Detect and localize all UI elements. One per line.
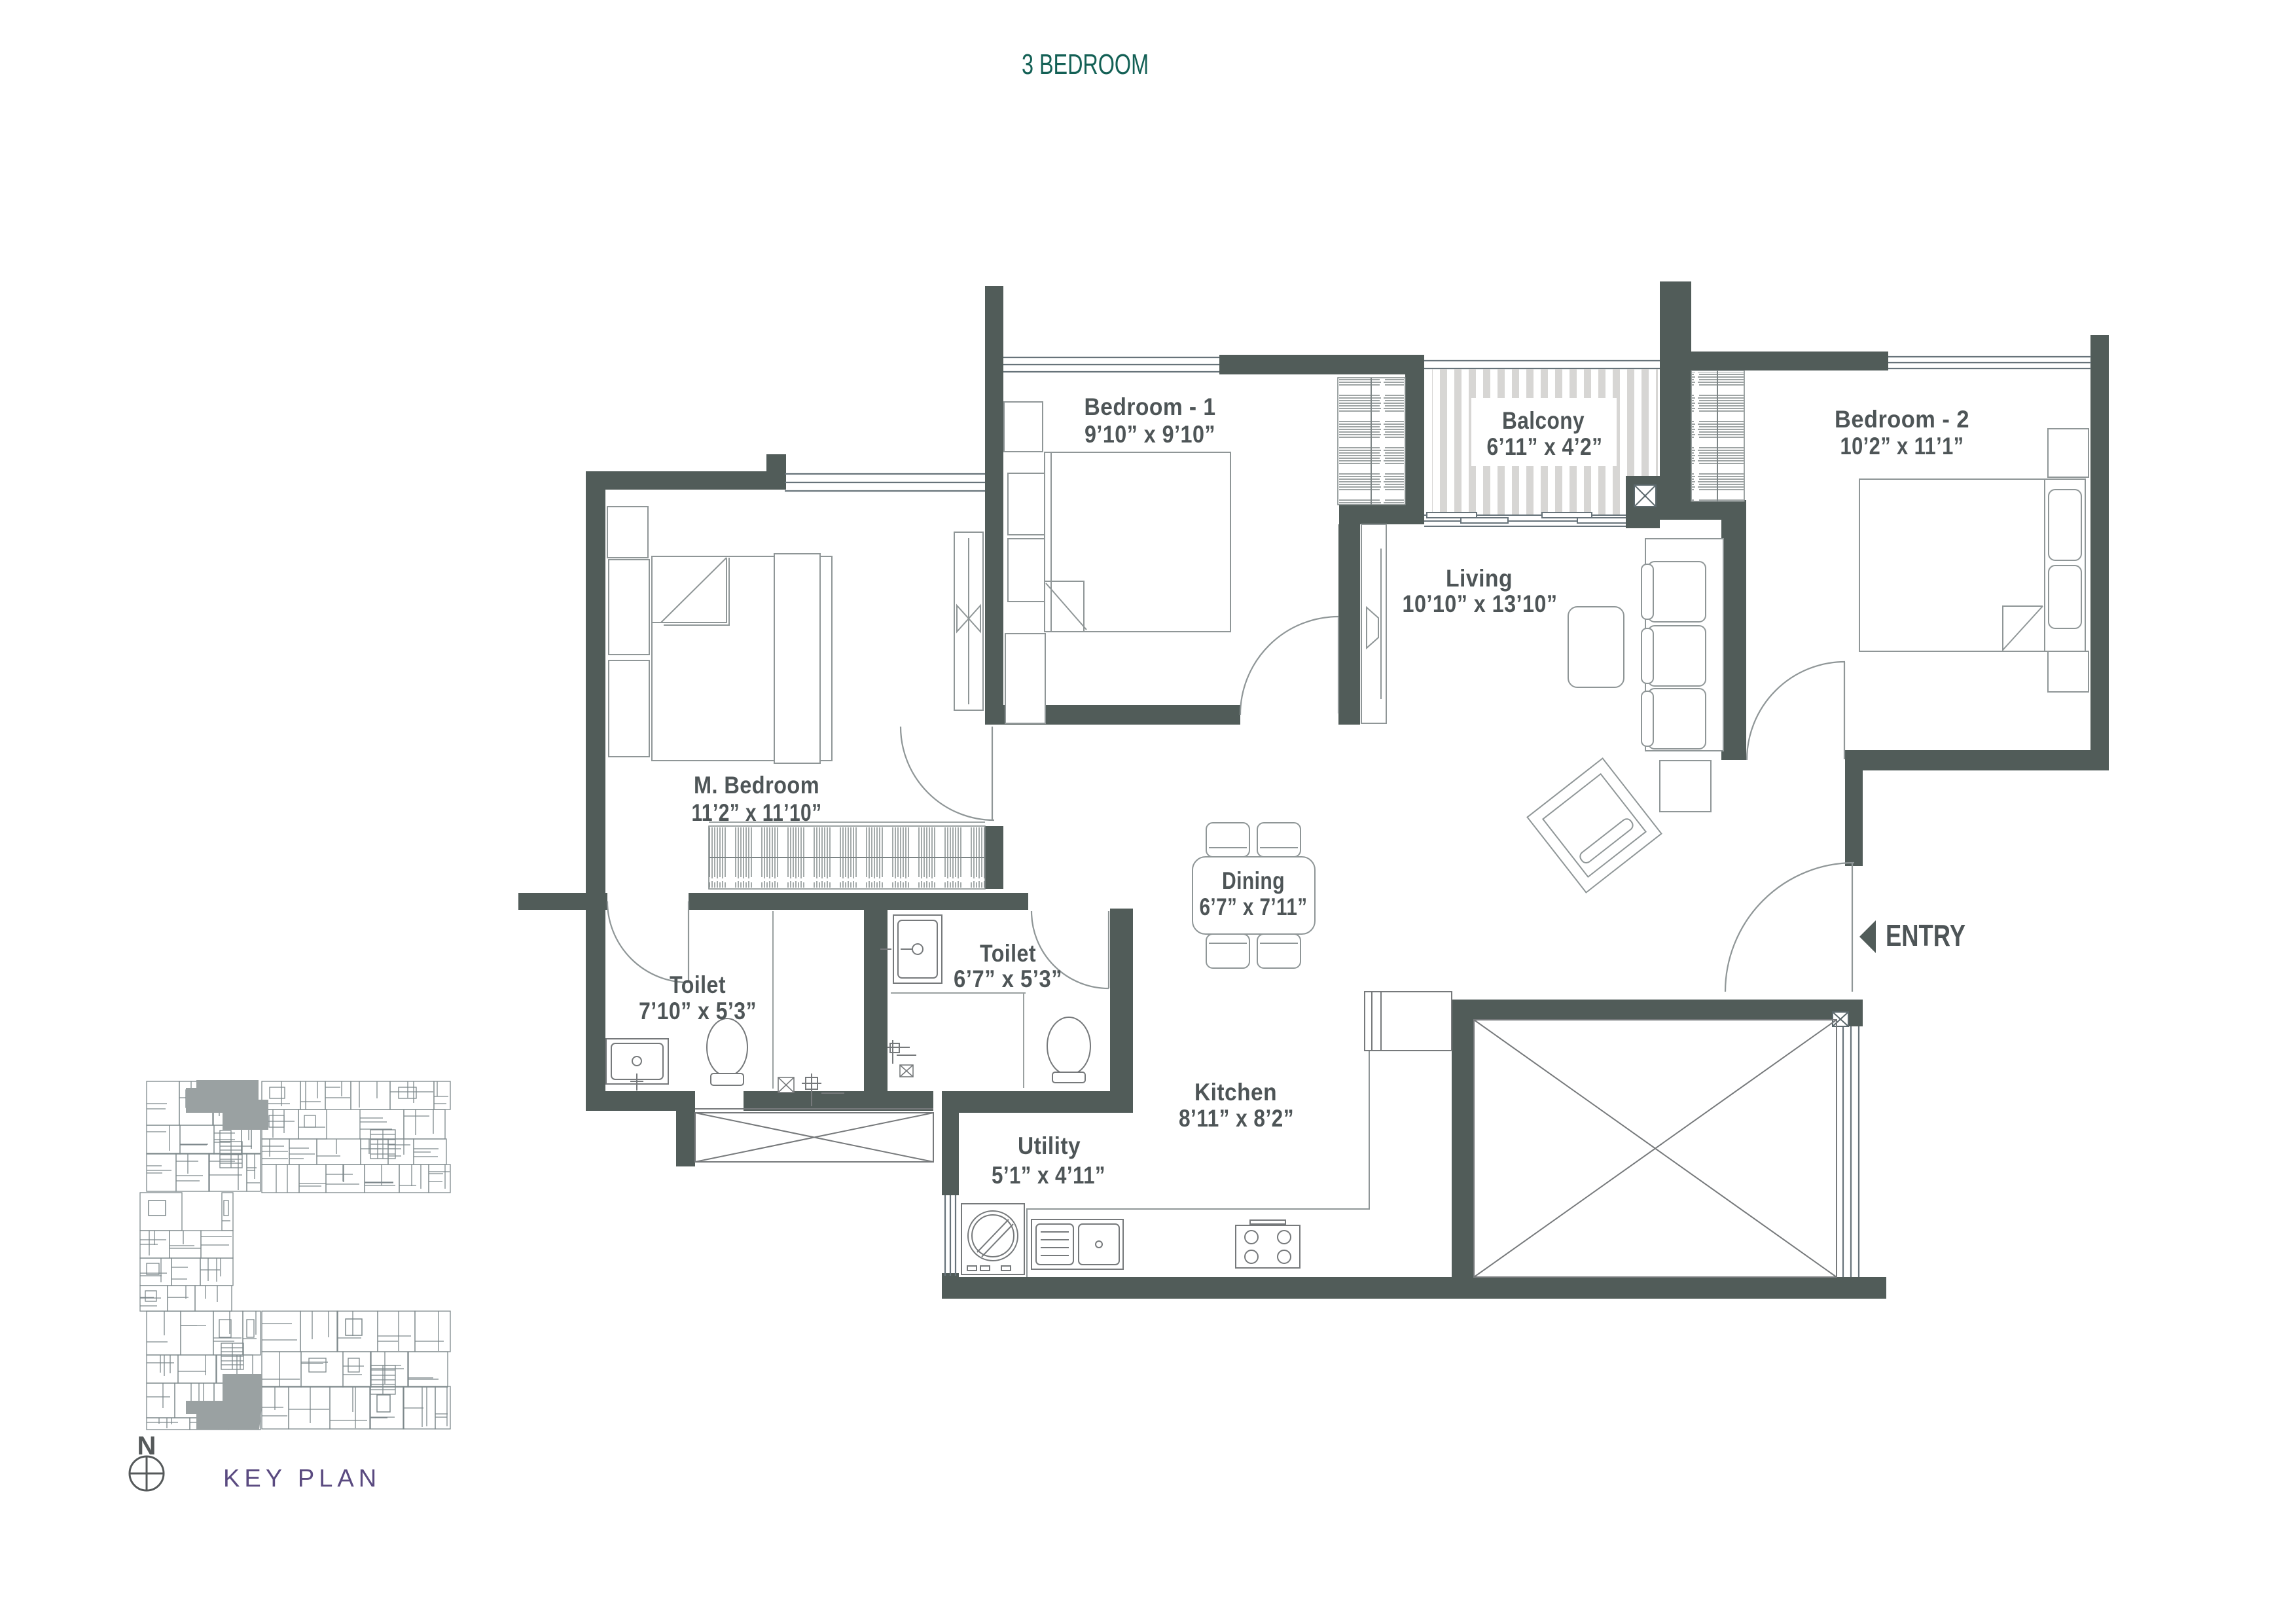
svg-text:10’10” x 13’10”: 10’10” x 13’10” xyxy=(1403,590,1558,617)
svg-text:7’10” x 5’3”: 7’10” x 5’3” xyxy=(639,998,757,1024)
svg-text:ENTRY: ENTRY xyxy=(1886,918,1965,952)
svg-text:5’1” x 4’11”: 5’1” x 4’11” xyxy=(992,1162,1105,1189)
svg-text:8’11” x 8’2”: 8’11” x 8’2” xyxy=(1179,1105,1294,1132)
svg-text:Balcony: Balcony xyxy=(1502,407,1585,434)
svg-text:11’2” x 11’10”: 11’2” x 11’10” xyxy=(692,799,822,826)
svg-text:Kitchen: Kitchen xyxy=(1194,1079,1277,1106)
svg-text:Toilet: Toilet xyxy=(670,971,726,998)
svg-text:KEY PLAN: KEY PLAN xyxy=(223,1465,381,1492)
svg-text:Bedroom - 2: Bedroom - 2 xyxy=(1835,406,1969,433)
svg-text:Toilet: Toilet xyxy=(980,940,1036,967)
svg-text:M. Bedroom: M. Bedroom xyxy=(694,772,819,799)
svg-text:Bedroom - 1: Bedroom - 1 xyxy=(1085,393,1216,420)
svg-text:6’11” x 4’2”: 6’11” x 4’2” xyxy=(1487,433,1603,460)
svg-text:6’7” x 7’11”: 6’7” x 7’11” xyxy=(1200,893,1308,920)
svg-text:10’2” x 11’1”: 10’2” x 11’1” xyxy=(1840,433,1964,460)
svg-text:Utility: Utility xyxy=(1018,1132,1081,1159)
svg-text:3 BEDROOM: 3 BEDROOM xyxy=(1022,48,1149,81)
svg-text:9’10” x 9’10”: 9’10” x 9’10” xyxy=(1085,421,1215,448)
svg-text:Dining: Dining xyxy=(1222,867,1285,894)
svg-text:6’7” x 5’3”: 6’7” x 5’3” xyxy=(954,965,1062,992)
svg-text:Living: Living xyxy=(1446,565,1513,592)
